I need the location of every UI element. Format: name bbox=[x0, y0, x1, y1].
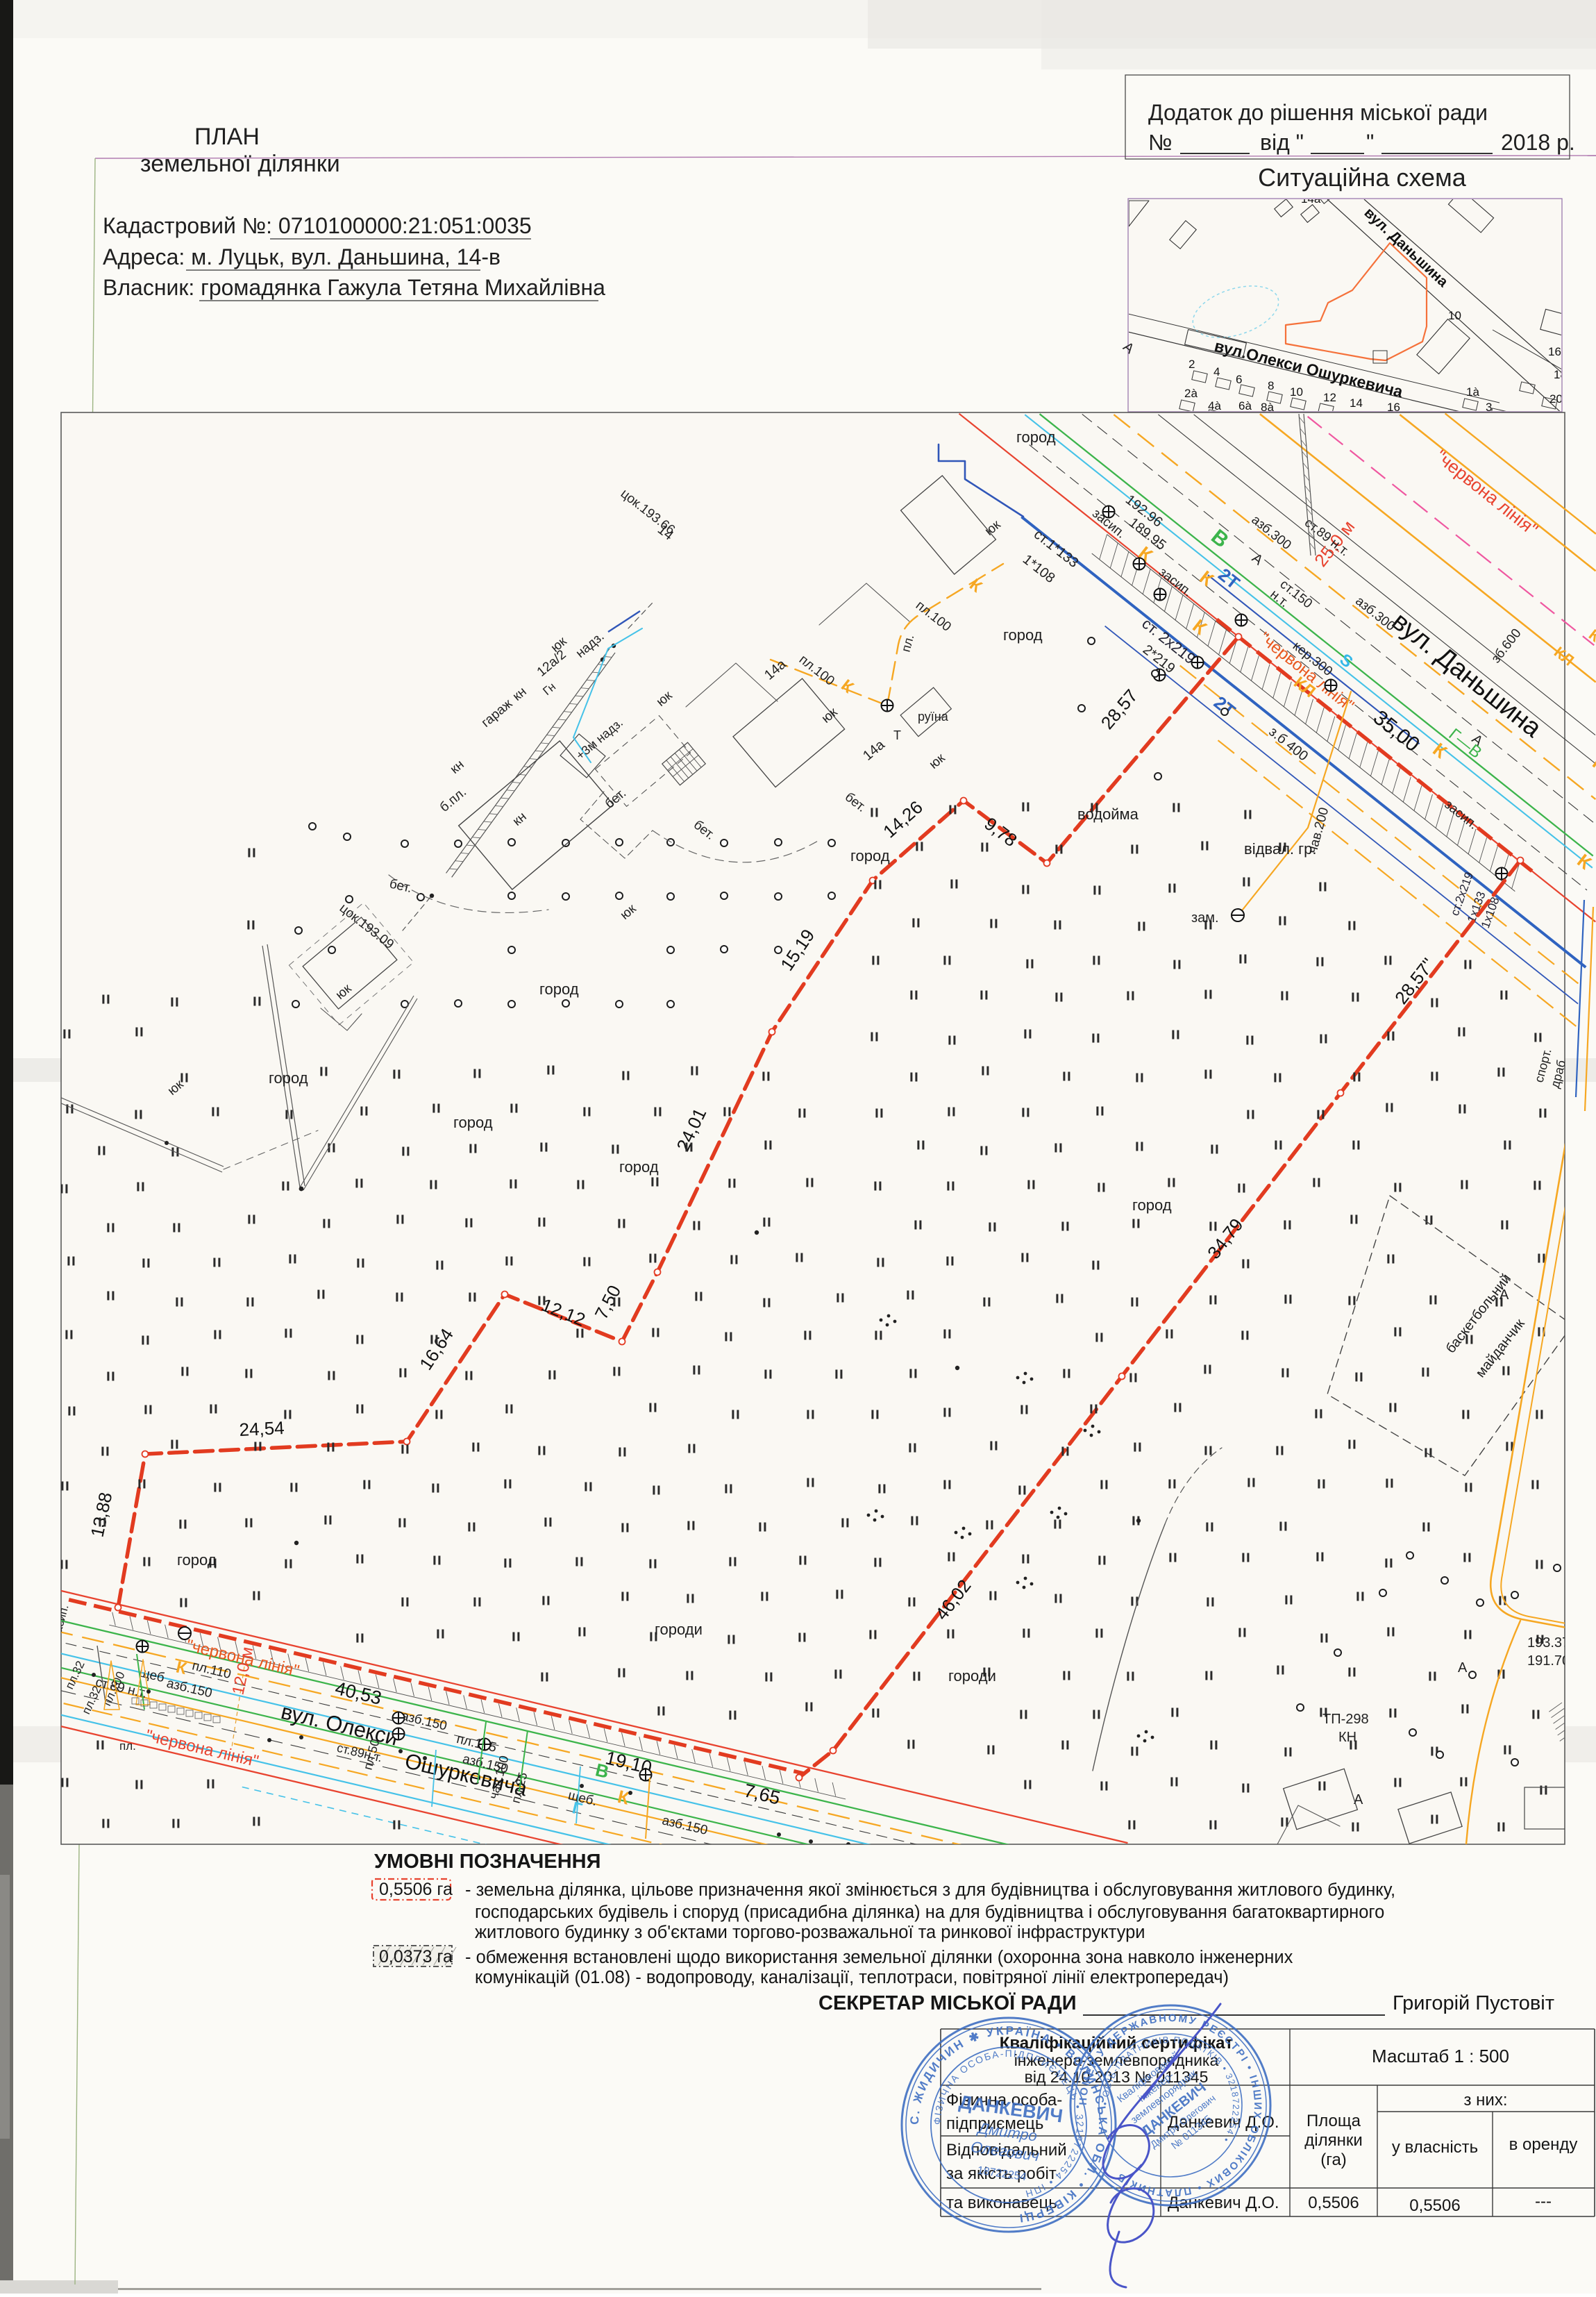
svg-text:№: № bbox=[1148, 130, 1172, 155]
svg-text:4à: 4à bbox=[1208, 399, 1221, 412]
svg-text:Додаток до рішення міської рад: Додаток до рішення міської ради bbox=[1148, 100, 1488, 125]
svg-text:городи: городи bbox=[948, 1667, 996, 1685]
svg-text:191.70: 191.70 bbox=[1527, 1653, 1570, 1669]
svg-text:Т: Т bbox=[893, 728, 901, 742]
svg-text:24,54: 24,54 bbox=[239, 1417, 285, 1440]
svg-text:2: 2 bbox=[1188, 358, 1195, 371]
svg-text:14: 14 bbox=[1350, 396, 1363, 410]
svg-text:Площа: Площа bbox=[1307, 2112, 1361, 2130]
svg-text:город: город bbox=[177, 1551, 217, 1569]
svg-text:0,5506: 0,5506 bbox=[1409, 2196, 1460, 2215]
svg-text:2à: 2à bbox=[1184, 387, 1198, 400]
svg-text:город: город bbox=[1016, 428, 1056, 446]
svg-text:12: 12 bbox=[1323, 391, 1336, 404]
svg-text:6à: 6à bbox=[1238, 399, 1252, 412]
svg-text:- земельна ділянка, цільове пр: - земельна ділянка, цільове призначення … bbox=[465, 1880, 1395, 1900]
svg-text:20: 20 bbox=[1549, 392, 1563, 406]
svg-text:зам.: зам. bbox=[1191, 910, 1219, 926]
svg-text:0,5506 га: 0,5506 га bbox=[379, 1880, 453, 1899]
svg-text:город: город bbox=[1132, 1196, 1172, 1214]
svg-text:від ": від " bbox=[1260, 130, 1304, 155]
svg-text:10: 10 bbox=[1448, 309, 1461, 322]
svg-text:ПЛАН: ПЛАН bbox=[194, 124, 260, 150]
svg-text:Адреса: м. Луцьк, вул. Даньшин: Адреса: м. Луцьк, вул. Даньшина, 14-в bbox=[103, 244, 501, 269]
svg-text:земельної ділянки: земельної ділянки bbox=[140, 151, 340, 177]
svg-text:0,0373 га: 0,0373 га bbox=[379, 1947, 453, 1966]
svg-text:КН: КН bbox=[1338, 1730, 1356, 1745]
svg-text:город: город bbox=[453, 1114, 493, 1131]
svg-text:А: А bbox=[1500, 1287, 1509, 1303]
svg-text:ділянки: ділянки bbox=[1304, 2131, 1363, 2150]
svg-text:в оренду: в оренду bbox=[1509, 2135, 1578, 2154]
svg-text:город: город bbox=[619, 1158, 659, 1176]
svg-text:городи: городи bbox=[655, 1621, 703, 1638]
svg-text:у власність: у власність bbox=[1392, 2138, 1478, 2157]
svg-text:господарських будівель і спору: господарських будівель і споруд (присади… bbox=[475, 1903, 1384, 1922]
svg-text:СЕКРЕТАР МІСЬКОЇ РАДИ: СЕКРЕТАР МІСЬКОЇ РАДИ bbox=[818, 1991, 1077, 2014]
svg-text:---: --- bbox=[1535, 2192, 1552, 2211]
svg-text:водойма: водойма bbox=[1077, 805, 1139, 823]
svg-text:А: А bbox=[1354, 1792, 1363, 1807]
svg-text:0,5506: 0,5506 bbox=[1308, 2194, 1359, 2212]
svg-text:- обмеження встановлені щодо в: - обмеження встановлені щодо використанн… bbox=[465, 1948, 1293, 1967]
svg-text:город: город bbox=[269, 1069, 308, 1087]
svg-text:город: город bbox=[539, 980, 579, 998]
svg-text:4: 4 bbox=[1213, 365, 1220, 378]
svg-text:комунікацій (01.08) - водопров: комунікацій (01.08) - водопроводу, канал… bbox=[475, 1968, 1229, 1987]
svg-text:Власник: громадянка Гажула Тет: Власник: громадянка Гажула Тетяна Михайл… bbox=[103, 275, 605, 300]
svg-text:з них:: з них: bbox=[1464, 2091, 1508, 2110]
svg-text:": " bbox=[1366, 130, 1374, 155]
svg-text:ТП-298: ТП-298 bbox=[1322, 1712, 1369, 1727]
svg-text:(га): (га) bbox=[1320, 2150, 1347, 2169]
svg-text:А: А bbox=[1458, 1660, 1468, 1676]
svg-text:житлового будинку з об'єктами: житлового будинку з об'єктами торгово-ро… bbox=[475, 1923, 1145, 1942]
svg-text:Ситуаційна схема: Ситуаційна схема bbox=[1258, 163, 1467, 192]
svg-text:193.37: 193.37 bbox=[1527, 1635, 1570, 1651]
svg-text:Кадастровий №: 0710100000:21:0: Кадастровий №: 0710100000:21:051:0035 bbox=[103, 213, 532, 238]
svg-text:відвал. гр.: відвал. гр. bbox=[1244, 840, 1317, 858]
svg-text:16: 16 bbox=[1548, 345, 1561, 358]
svg-text:город: город bbox=[1003, 626, 1043, 644]
svg-text:10: 10 bbox=[1290, 385, 1303, 399]
svg-text:2018 р.: 2018 р. bbox=[1501, 130, 1575, 155]
svg-text:УМОВНІ ПОЗНАЧЕННЯ: УМОВНІ ПОЗНАЧЕННЯ bbox=[374, 1851, 600, 1873]
svg-text:пл.: пл. bbox=[119, 1739, 136, 1753]
svg-text:Григорій Пустовіт: Григорій Пустовіт bbox=[1393, 1992, 1554, 2014]
svg-text:1à: 1à bbox=[1466, 385, 1479, 399]
svg-text:Масштаб 1 : 500: Масштаб 1 : 500 bbox=[1372, 2046, 1509, 2066]
svg-text:8: 8 bbox=[1268, 379, 1274, 392]
svg-text:6: 6 bbox=[1236, 373, 1242, 386]
svg-text:руїна: руїна bbox=[918, 710, 949, 724]
svg-text:город: город bbox=[850, 847, 890, 864]
